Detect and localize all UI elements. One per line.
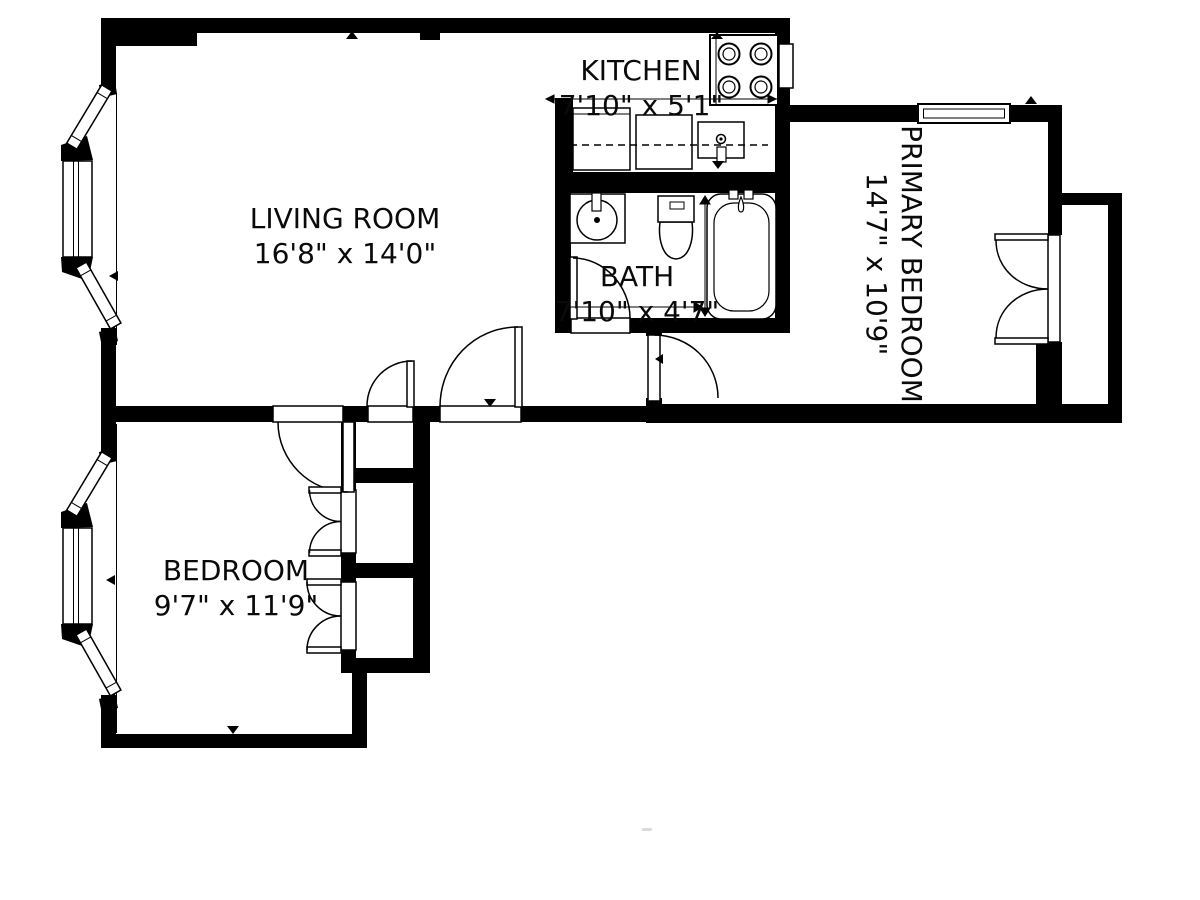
closet-doors-bedroom-a	[309, 487, 341, 556]
kitchen-wall-cabinet	[779, 44, 793, 88]
room-label-primary-bedroom: PRIMARY BEDROOM 14'7" x 10'9"	[859, 125, 929, 403]
room-label-bath: BATH 7'10" x 4'7"	[555, 259, 720, 329]
dishwasher-icon	[636, 115, 692, 169]
hall-door	[648, 335, 718, 401]
room-dimensions: 16'8" x 14'0"	[250, 236, 441, 271]
room-dimensions: 7'10" x 4'7"	[555, 294, 720, 329]
room-name: LIVING ROOM	[250, 201, 441, 236]
faint-watermark	[642, 828, 652, 831]
floor-plan-drawing	[0, 0, 1200, 900]
room-dimensions: 14'7" x 10'9"	[859, 125, 894, 403]
room-dimensions: 9'7" x 11'9"	[154, 588, 319, 623]
room-name: KITCHEN	[559, 53, 724, 88]
room-name: BATH	[555, 259, 720, 294]
bedroom-door	[278, 422, 354, 492]
toilet-icon	[658, 196, 694, 259]
room-label-living-room: LIVING ROOM 16'8" x 14'0"	[250, 201, 441, 271]
closet-door-living	[367, 361, 414, 407]
floor-plan: LIVING ROOM 16'8" x 14'0" KITCHEN 7'10" …	[0, 0, 1200, 900]
bay-window-living	[63, 85, 121, 345]
room-name: PRIMARY BEDROOM	[894, 125, 929, 403]
entry-door	[440, 327, 522, 407]
room-label-kitchen: KITCHEN 7'10" x 5'1"	[559, 53, 724, 123]
closet-doors-primary	[995, 234, 1048, 344]
room-label-bedroom: BEDROOM 9'7" x 11'9"	[154, 553, 319, 623]
window-primary	[918, 104, 1010, 123]
room-dimensions: 7'10" x 5'1"	[559, 88, 724, 123]
vanity-sink-icon	[570, 193, 625, 243]
kitchen-sink-icon	[698, 122, 744, 162]
room-name: BEDROOM	[154, 553, 319, 588]
